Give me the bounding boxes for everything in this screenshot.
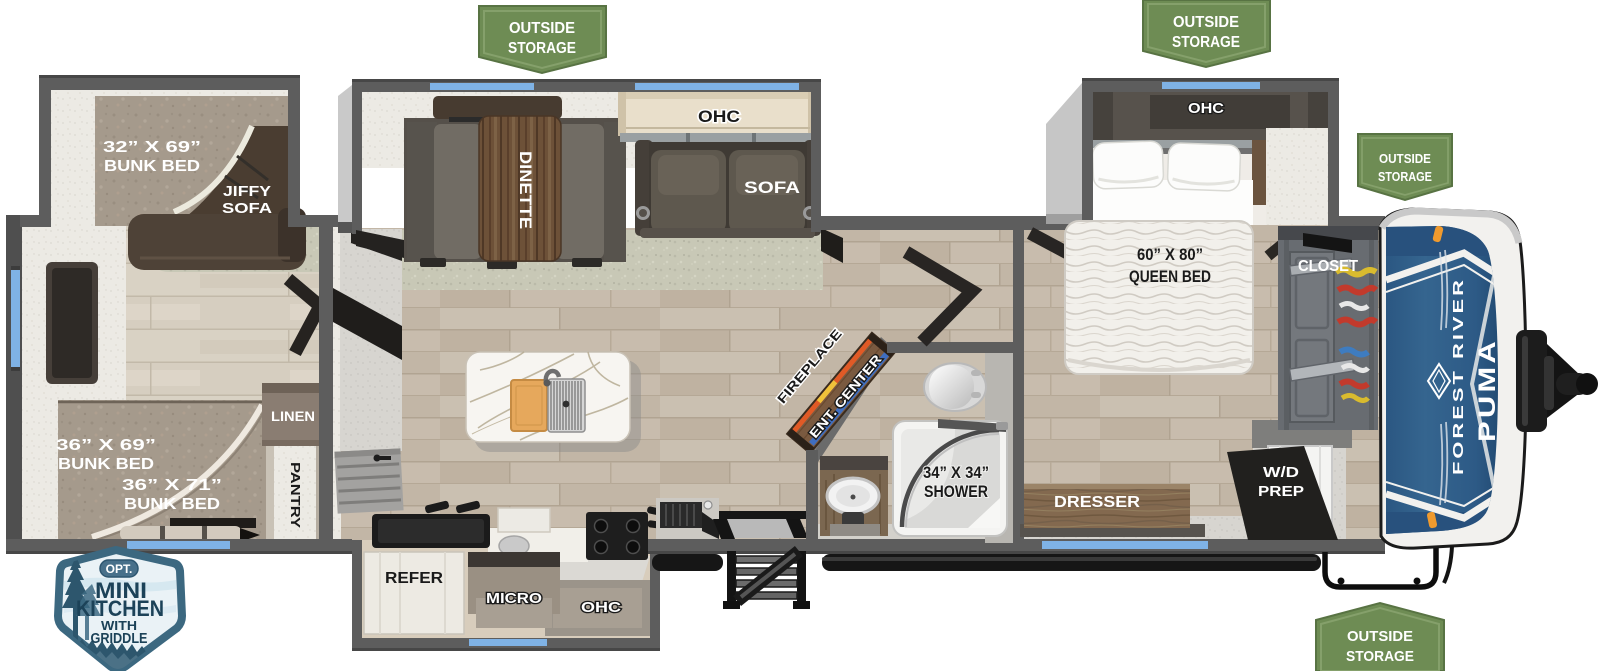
svg-text:SOFA: SOFA [744,178,800,197]
svg-text:FOREST RIVER: FOREST RIVER [1451,277,1467,475]
svg-text:REFER: REFER [385,570,443,587]
svg-text:32” X 69”: 32” X 69” [103,139,201,156]
svg-text:GRIDDLE: GRIDDLE [91,631,148,647]
svg-text:OUTSIDE: OUTSIDE [1347,628,1413,645]
svg-text:OHC: OHC [1188,100,1224,117]
svg-text:CLOSET: CLOSET [1298,258,1358,275]
svg-text:36” X 71”: 36” X 71” [122,477,222,494]
svg-text:OUTSIDE: OUTSIDE [1173,14,1239,31]
svg-text:QUEEN BED: QUEEN BED [1129,267,1211,286]
svg-text:DRESSER: DRESSER [1054,494,1140,511]
svg-text:OPT.: OPT. [106,562,133,576]
svg-text:STORAGE: STORAGE [508,40,576,57]
svg-text:BUNK BED: BUNK BED [58,456,154,473]
svg-text:PANTRY: PANTRY [288,462,303,528]
svg-text:PREP: PREP [1258,483,1304,500]
svg-text:SHOWER: SHOWER [924,482,988,501]
svg-text:60” X 80”: 60” X 80” [1137,245,1203,264]
svg-text:34” X 34”: 34” X 34” [923,463,989,482]
svg-text:OUTSIDE: OUTSIDE [1379,151,1431,166]
svg-text:STORAGE: STORAGE [1378,169,1432,184]
svg-text:OHC: OHC [698,107,740,126]
svg-text:SOFA: SOFA [222,200,272,217]
svg-text:MICRO: MICRO [486,590,542,607]
svg-text:DINETTE: DINETTE [516,151,535,229]
svg-text:OHC: OHC [581,599,621,616]
svg-text:BUNK BED: BUNK BED [124,496,220,513]
svg-text:STORAGE: STORAGE [1172,34,1240,51]
svg-text:PUMA: PUMA [1474,338,1501,442]
svg-text:LINEN: LINEN [271,408,315,424]
svg-text:OUTSIDE: OUTSIDE [509,20,575,37]
svg-text:STORAGE: STORAGE [1346,648,1414,665]
svg-text:W/D: W/D [1263,464,1299,481]
svg-text:BUNK BED: BUNK BED [104,158,200,175]
svg-text:JIFFY: JIFFY [223,183,271,200]
svg-text:36” X 69”: 36” X 69” [56,437,156,454]
